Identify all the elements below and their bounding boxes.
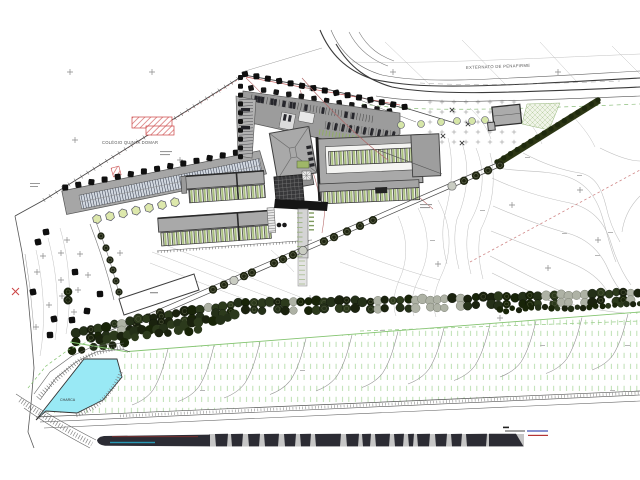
- svg-text:CHARCA: CHARCA: [60, 398, 76, 402]
- svg-text:COLÉGIO QUINTA DOMAR: COLÉGIO QUINTA DOMAR: [102, 140, 158, 145]
